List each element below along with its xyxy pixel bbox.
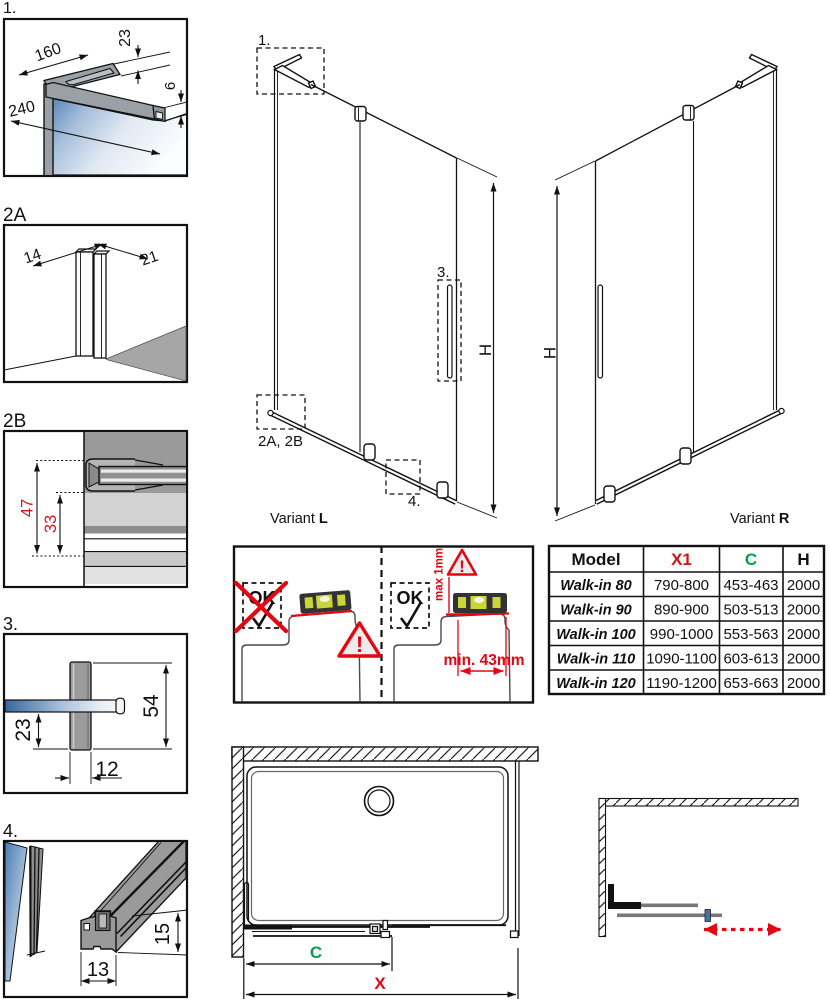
svg-text:Walk-in 100: Walk-in 100 — [556, 627, 636, 643]
svg-text:4.: 4. — [408, 493, 421, 510]
svg-text:min. 43mm: min. 43mm — [444, 652, 525, 669]
svg-text:47: 47 — [19, 499, 37, 517]
svg-text:2000: 2000 — [787, 602, 820, 619]
svg-text:!: ! — [459, 557, 465, 576]
svg-text:890-900: 890-900 — [654, 602, 709, 619]
svg-text:C: C — [745, 550, 757, 569]
svg-text:54: 54 — [140, 694, 163, 718]
svg-text:H: H — [476, 344, 495, 356]
svg-text:33: 33 — [42, 515, 60, 533]
svg-text:12: 12 — [95, 758, 118, 781]
svg-text:3.: 3. — [3, 614, 18, 634]
svg-text:H: H — [541, 347, 560, 359]
svg-text:2A: 2A — [3, 205, 27, 226]
svg-text:2000: 2000 — [787, 626, 820, 643]
svg-text:2000: 2000 — [787, 675, 820, 692]
svg-text:Model: Model — [571, 550, 620, 569]
svg-text:Walk-in 110: Walk-in 110 — [557, 652, 635, 668]
svg-text:X: X — [374, 974, 386, 993]
svg-text:23: 23 — [12, 718, 35, 741]
svg-text:603-613: 603-613 — [723, 651, 778, 668]
svg-text:1.: 1. — [258, 32, 271, 49]
svg-text:503-513: 503-513 — [723, 602, 778, 619]
svg-text:Walk-in 120: Walk-in 120 — [556, 676, 636, 692]
svg-text:653-663: 653-663 — [723, 675, 778, 692]
svg-text:3.: 3. — [437, 264, 450, 281]
svg-text:1.: 1. — [3, 0, 16, 17]
svg-text:790-800: 790-800 — [654, 577, 709, 594]
svg-text:990-1000: 990-1000 — [650, 626, 713, 643]
svg-text:2A, 2B: 2A, 2B — [258, 433, 303, 450]
svg-text:15: 15 — [152, 923, 174, 945]
svg-text:H: H — [797, 550, 809, 569]
svg-text:2000: 2000 — [787, 651, 820, 668]
svg-text:Variant L: Variant L — [270, 511, 328, 527]
svg-text:max 1mm: max 1mm — [434, 548, 446, 601]
svg-text:Walk-in 80: Walk-in 80 — [560, 578, 631, 594]
svg-text:C: C — [310, 943, 322, 962]
svg-text:Walk-in 90: Walk-in 90 — [560, 603, 631, 619]
svg-text:453-463: 453-463 — [723, 577, 778, 594]
svg-text:6: 6 — [162, 82, 179, 90]
svg-text:1190-1200: 1190-1200 — [646, 675, 717, 692]
svg-text:4.: 4. — [3, 821, 18, 841]
svg-text:!: ! — [356, 632, 363, 657]
svg-text:Variant R: Variant R — [730, 511, 790, 527]
svg-text:2000: 2000 — [787, 577, 820, 594]
svg-text:1090-1100: 1090-1100 — [646, 651, 717, 668]
svg-text:13: 13 — [87, 959, 109, 981]
svg-text:X1: X1 — [671, 550, 692, 569]
svg-text:2B: 2B — [3, 411, 26, 432]
svg-text:23: 23 — [117, 29, 134, 47]
svg-text:553-563: 553-563 — [723, 626, 778, 643]
